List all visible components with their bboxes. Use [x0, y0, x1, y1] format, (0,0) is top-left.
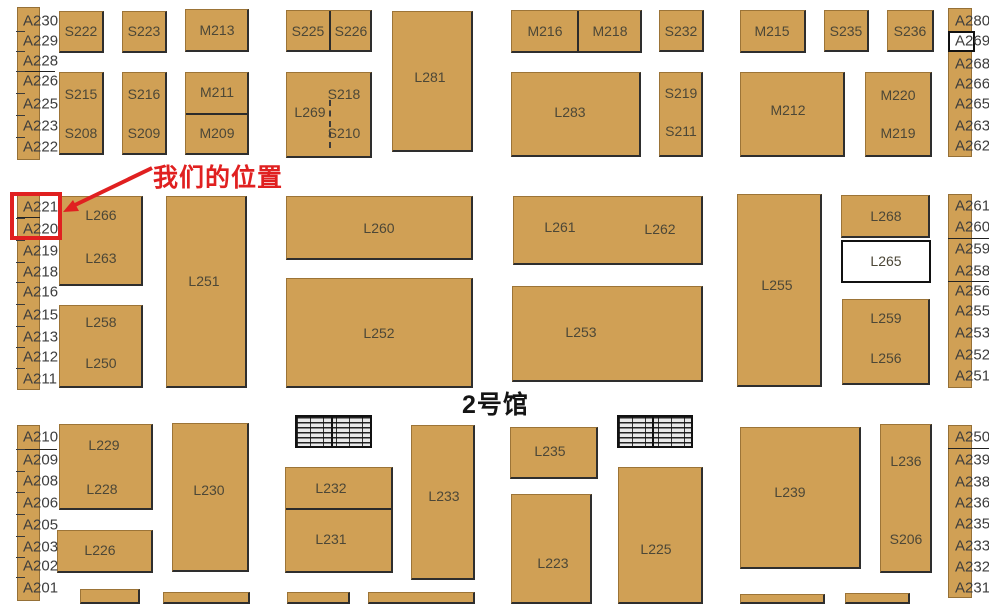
exhibition-floorplan: 2号馆 我们的位置 A230A229A228A226A225A223A222A2…: [0, 0, 989, 604]
strip-booth-label: A212: [23, 349, 58, 366]
strip-tick: [16, 514, 25, 515]
booth-label: L229: [88, 437, 119, 453]
booth-edge-1: [80, 589, 140, 604]
booth-label: L252: [363, 325, 394, 341]
strip-divider-line: [948, 238, 989, 239]
booth-label: M215: [754, 23, 789, 39]
booth-label: M211: [200, 84, 234, 100]
strip-tick: [16, 326, 25, 327]
booth-label: L260: [363, 220, 394, 236]
booth-label: L255: [761, 277, 792, 293]
booth-L253: [512, 286, 703, 382]
booth-label: S215: [65, 86, 98, 102]
booth-edge-2: [163, 592, 250, 604]
booth-label: M212: [770, 102, 805, 118]
strip-tick: [16, 282, 25, 283]
booth-label: S236: [894, 23, 927, 39]
booth-label: L268: [870, 208, 901, 224]
booth-label: L269: [294, 104, 325, 120]
hall-title: 2号馆: [462, 385, 529, 421]
booth-label: L233: [428, 488, 459, 504]
strip-booth-label: A211: [23, 371, 57, 388]
strip-booth-label: A218: [23, 264, 58, 281]
strip-booth-label: A280: [955, 13, 989, 30]
strip-booth-label: A266: [955, 76, 989, 93]
strip-tick: [16, 304, 25, 305]
strip-booth-label: A262: [955, 138, 989, 155]
booth-edge-6: [845, 593, 910, 604]
strip-booth-label: A229: [23, 33, 58, 50]
booth-label: S235: [830, 23, 863, 39]
strip-tick: [16, 368, 25, 369]
booth-L251: [166, 196, 247, 388]
booth-label: L231: [315, 531, 346, 547]
booth-label: L263: [85, 250, 116, 266]
strip-tick: [16, 536, 25, 537]
booth-label: M216: [527, 23, 562, 39]
strip-tick: [16, 31, 25, 32]
booth-label: M219: [880, 125, 915, 141]
booth-label: L281: [414, 69, 445, 85]
escalator-2-icon: [617, 415, 693, 448]
strip-tick: [16, 449, 25, 450]
strip-booth-label: A225: [23, 96, 58, 113]
booth-edge-3: [287, 592, 350, 604]
booth-label: L236: [890, 453, 921, 469]
strip-booth-label: A209: [23, 452, 58, 469]
strip-booth-label: A253: [955, 325, 989, 342]
booth-label: S218: [328, 86, 361, 102]
strip-tick: [16, 262, 25, 263]
booth-L236-S206: [880, 424, 932, 573]
strip-booth-label: A261: [955, 198, 989, 215]
booth-divider: [186, 113, 247, 115]
booth-label: L232: [315, 480, 346, 496]
strip-tick: [16, 347, 25, 348]
strip-tick: [16, 240, 25, 241]
booth-label: S226: [335, 23, 368, 39]
strip-tick: [16, 93, 25, 94]
strip-booth-label: A222: [23, 139, 58, 156]
strip-divider-line: [948, 281, 989, 282]
booth-label: L228: [86, 481, 117, 497]
strip-booth-label: A202: [23, 558, 58, 575]
strip-tick: [16, 471, 25, 472]
strip-booth-label: A268: [955, 56, 989, 73]
strip-booth-label: A230: [23, 13, 58, 30]
booth-S215-S208: [59, 72, 104, 155]
strip-booth-label: A263: [955, 118, 989, 135]
our-location-highlight-box: [10, 192, 62, 240]
booth-label: L251: [188, 273, 219, 289]
booth-label: M218: [592, 23, 627, 39]
booth-divider: [329, 11, 331, 50]
strip-booth-label: A251: [955, 368, 989, 385]
strip-booth-label: A260: [955, 219, 989, 236]
booth-label: S210: [328, 125, 361, 141]
strip-booth-label: A258: [955, 263, 989, 280]
strip-booth-label: A203: [23, 539, 58, 556]
booth-S216-S209: [122, 72, 167, 155]
strip-booth-label: A252: [955, 347, 989, 364]
strip-booth-label: A228: [23, 53, 58, 70]
strip-tick: [16, 577, 25, 578]
strip-booth-label: A255: [955, 303, 989, 320]
strip-booth-label: A216: [23, 284, 58, 301]
booth-label: L250: [85, 355, 116, 371]
booth-label: L258: [85, 314, 116, 330]
strip-booth-label: A265: [955, 96, 989, 113]
booth-edge-5: [740, 594, 825, 604]
booth-label: S211: [665, 123, 697, 139]
booth-label: L225: [640, 541, 671, 557]
strip-divider-line: [948, 448, 989, 449]
strip-tick: [16, 51, 25, 52]
booth-L225: [618, 467, 703, 604]
booth-label: S232: [665, 23, 698, 39]
strip-booth-label: A233: [955, 538, 989, 555]
strip-booth-label: A232: [955, 559, 989, 576]
booth-label: S219: [665, 85, 698, 101]
booth-label: S223: [128, 23, 161, 39]
strip-booth-label: A231: [955, 580, 989, 597]
booth-label: L266: [85, 207, 116, 223]
booth-M220-M219: [865, 72, 932, 157]
strip-booth-label: A208: [23, 473, 58, 490]
strip-tick: [16, 71, 25, 72]
strip-booth-label: A219: [23, 243, 58, 260]
booth-label: L265: [870, 253, 901, 269]
booth-label: S216: [128, 86, 161, 102]
strip-booth-label: A269: [955, 33, 989, 50]
booth-label: S208: [65, 125, 98, 141]
strip-tick: [16, 137, 25, 138]
booth-label: S206: [890, 531, 923, 547]
strip-booth-label: A210: [23, 429, 58, 446]
booth-label: L230: [193, 482, 224, 498]
strip-booth-label: A250: [955, 429, 989, 446]
strip-booth-label: A235: [955, 516, 989, 533]
booth-label: L262: [644, 221, 675, 237]
booth-label: S225: [292, 23, 325, 39]
strip-booth-label: A213: [23, 329, 58, 346]
strip-tick: [16, 115, 25, 116]
strip-booth-label: A206: [23, 495, 58, 512]
strip-booth-label: A223: [23, 118, 58, 135]
booth-label: L239: [774, 484, 805, 500]
our-location-label: 我们的位置: [153, 158, 283, 194]
strip-booth-label: A259: [955, 241, 989, 258]
strip-booth-label: A201: [23, 580, 58, 597]
booth-label: L259: [870, 310, 901, 326]
strip-tick: [16, 557, 25, 558]
booth-label: L283: [554, 104, 585, 120]
booth-divider: [577, 11, 579, 51]
booth-label: M209: [199, 125, 234, 141]
booth-label: S209: [128, 125, 161, 141]
strip-tick: [16, 492, 25, 493]
booth-label: S222: [65, 23, 98, 39]
escalator-1-icon: [295, 415, 372, 448]
booth-label: M213: [199, 22, 234, 38]
booth-label: L223: [537, 555, 568, 571]
booth-label: L256: [870, 350, 901, 366]
strip-booth-label: A215: [23, 307, 58, 324]
booth-label: L226: [84, 542, 115, 558]
booth-divider: [286, 508, 391, 510]
strip-booth-label: A238: [955, 474, 989, 491]
strip-booth-label: A205: [23, 517, 58, 534]
booth-L223: [511, 494, 592, 604]
booth-edge-4: [368, 592, 475, 604]
strip-booth-label: A226: [23, 73, 58, 90]
booth-label: M220: [880, 87, 915, 103]
strip-booth-label: A239: [955, 452, 989, 469]
booth-label: L235: [534, 443, 565, 459]
booth-label: L261: [544, 219, 575, 235]
booth-label: L253: [565, 324, 596, 340]
strip-booth-label: A236: [955, 495, 989, 512]
strip-booth-label: A256: [955, 283, 989, 300]
